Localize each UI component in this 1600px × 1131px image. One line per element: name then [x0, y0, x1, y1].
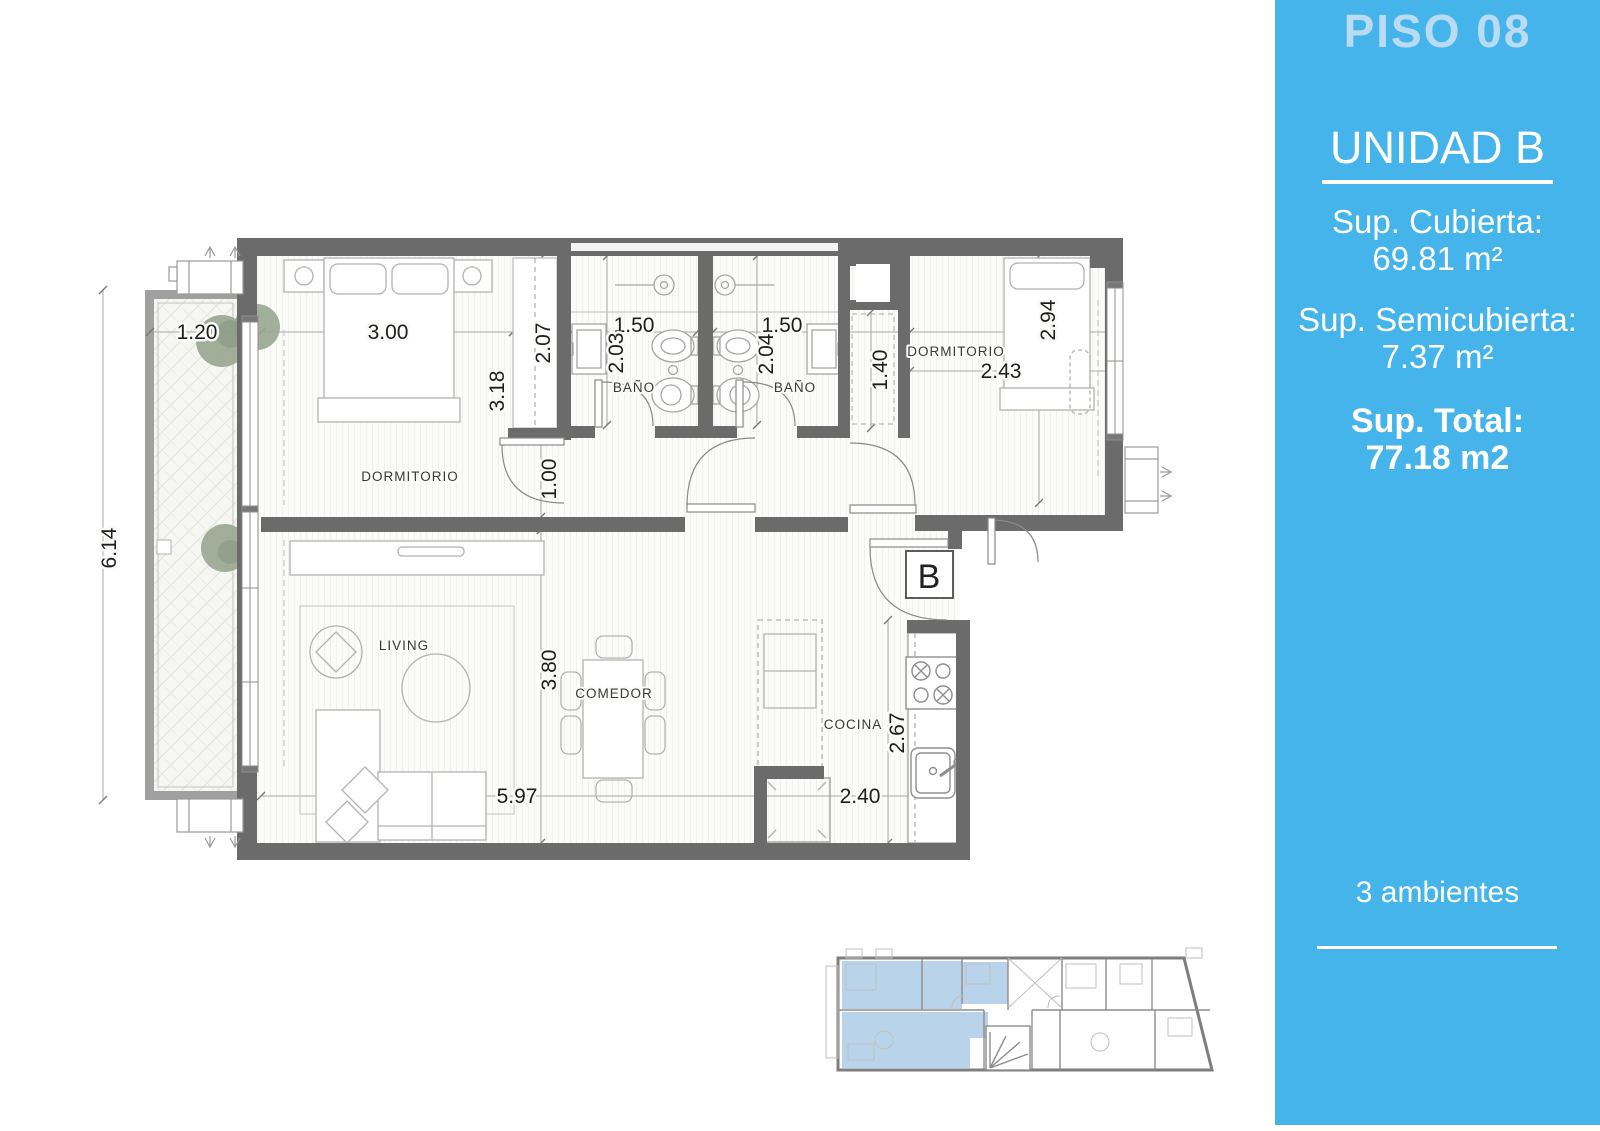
key-plan — [826, 948, 1212, 1070]
total-area: Sup. Total: 77.18 m2 — [1275, 403, 1600, 477]
door-leaf — [736, 380, 743, 427]
dim-closet-depth: 2.07 — [532, 323, 555, 364]
dim-bedroom2-depth: 2.94 — [1037, 299, 1060, 340]
total-area-value: 77.18 m2 — [1275, 440, 1600, 477]
info-panel: PISO 08 UNIDAD B Sup. Cubierta: 69.81 m²… — [1275, 0, 1600, 1125]
unit-badge-letter: B — [918, 558, 941, 596]
entry-door-leaf — [870, 539, 948, 547]
tv — [398, 547, 464, 556]
dim-living-depth: 3.80 — [538, 650, 561, 691]
label-bath2: BAÑO — [774, 380, 816, 395]
neighbor-door-leaf — [988, 518, 995, 564]
divider-line — [1317, 946, 1557, 949]
toilet — [652, 378, 694, 412]
bidet — [652, 330, 694, 362]
dim-hall-width: 1.00 — [538, 459, 561, 500]
floorplan-drawing: B DORMITORIO BAÑO BAÑO DORMITORIO LIVING… — [0, 0, 1277, 1131]
semicovered-area-label: Sup. Semicubierta: — [1275, 301, 1600, 338]
label-bath1: BAÑO — [613, 380, 655, 395]
label-kitchen: COCINA — [824, 717, 883, 732]
dim-bath1-depth: 2.03 — [605, 333, 628, 374]
bidet — [717, 330, 759, 362]
dim-kitchen-width: 2.40 — [840, 785, 881, 808]
nightstand — [284, 260, 324, 292]
key-plan-highlight — [842, 961, 1008, 1068]
dim-bath2-depth: 2.04 — [755, 333, 778, 374]
covered-area-label: Sup. Cubierta: — [1275, 203, 1600, 240]
door-leaf — [850, 505, 916, 513]
wall-duct — [571, 243, 838, 251]
door-leaf — [500, 438, 564, 445]
ac-unit — [177, 261, 243, 294]
unit-title-wrap: UNIDAD B — [1275, 122, 1600, 184]
label-living: LIVING — [379, 638, 429, 653]
ac-unit — [1125, 447, 1158, 513]
unit-title: UNIDAD B — [1322, 122, 1553, 184]
dining-table — [583, 660, 643, 778]
dim-kitchen-depth: 2.67 — [886, 713, 909, 754]
dim-bath2-width: 1.50 — [762, 314, 803, 337]
dim-balcony-width: 1.20 — [177, 321, 218, 344]
dim-bedroom1-width: 3.00 — [368, 321, 409, 344]
label-bedroom2: DORMITORIO — [907, 344, 1005, 359]
semicovered-area-value: 7.37 m² — [1275, 338, 1600, 375]
dim-bedroom1-depth: 3.18 — [486, 371, 509, 412]
label-bedroom1: DORMITORIO — [361, 469, 459, 484]
balcony-drain — [157, 540, 171, 554]
floor-title: PISO 08 — [1275, 4, 1600, 58]
floorplan-sheet: B DORMITORIO BAÑO BAÑO DORMITORIO LIVING… — [0, 0, 1600, 1131]
covered-area: Sup. Cubierta: 69.81 m² — [1275, 203, 1600, 277]
door-leaf — [595, 380, 602, 427]
shaft — [856, 264, 890, 302]
ac-unit — [177, 799, 243, 832]
dim-living-width: 5.97 — [497, 785, 538, 808]
semicovered-area: Sup. Semicubierta: 7.37 m² — [1275, 301, 1600, 375]
nightstand — [452, 260, 492, 292]
sink — [911, 748, 955, 798]
dim-passage-width: 1.40 — [869, 350, 892, 391]
total-area-label: Sup. Total: — [1275, 403, 1600, 440]
label-dining: COMEDOR — [575, 686, 653, 701]
rooms-note: 3 ambientes — [1275, 876, 1600, 910]
dim-bedroom2-width: 2.43 — [981, 360, 1022, 383]
covered-area-value: 69.81 m² — [1275, 240, 1600, 277]
door-leaf — [687, 504, 755, 512]
tv-console — [290, 541, 544, 575]
dim-balcony-length: 6.14 — [98, 527, 121, 568]
unit-badge: B — [906, 551, 953, 598]
